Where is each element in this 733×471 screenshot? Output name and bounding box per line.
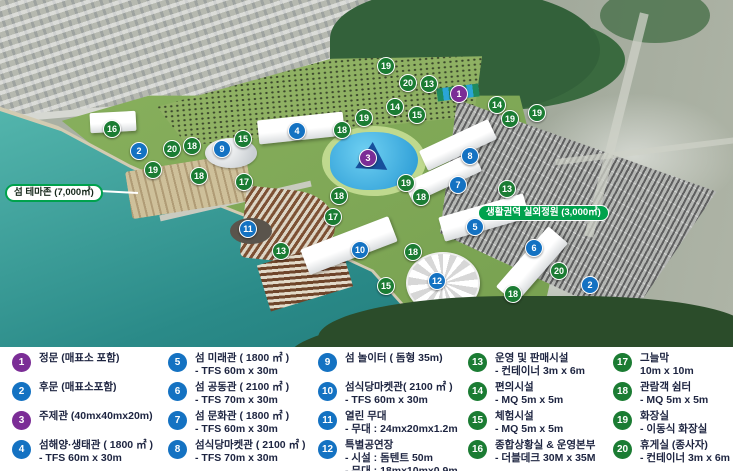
map-marker-18: 18 bbox=[333, 121, 351, 139]
map-marker-11: 11 bbox=[239, 220, 257, 238]
legend-item-detail: - TFS 70m x 30m bbox=[195, 452, 305, 465]
legend-item-title: 섬 놀이터 ( 돔형 35m) bbox=[345, 352, 443, 365]
legend-item-10: 10섬식당마켓관( 2100 ㎡ )- TFS 60m x 30m bbox=[318, 378, 468, 407]
map-marker-18: 18 bbox=[404, 243, 422, 261]
legend-item-title: 섬해양·생태관 ( 1800 ㎡ ) bbox=[39, 439, 153, 452]
legend-item-title: 체험시설 bbox=[495, 410, 563, 423]
legend-item-text: 종합상황실 & 운영본부- 더블데크 30M x 35M bbox=[495, 439, 596, 465]
map-marker-20: 20 bbox=[399, 74, 417, 92]
map-marker-13: 13 bbox=[420, 75, 438, 93]
legend-item-title: 관람객 쉼터 bbox=[640, 381, 708, 394]
legend-item-detail: - 컨테이너 3m x 6m bbox=[640, 452, 730, 465]
legend: 1정문 (매표소 포함)2후문 (매표소포함)3주제관 (40mx40mx20m… bbox=[0, 347, 733, 471]
map-marker-6: 6 bbox=[525, 239, 543, 257]
legend-number-badge: 14 bbox=[468, 382, 487, 401]
legend-item-detail: 10m x 10m bbox=[640, 365, 694, 378]
legend-item-title: 후문 (매표소포함) bbox=[39, 381, 117, 394]
legend-item-detail: - MQ 5m x 5m bbox=[640, 394, 708, 407]
legend-item-text: 섬 공동관 ( 2100 ㎡ )- TFS 70m x 30m bbox=[195, 381, 289, 407]
map-marker-17: 17 bbox=[235, 173, 253, 191]
legend-item-title: 섬 미래관 ( 1800 ㎡ ) bbox=[195, 352, 289, 365]
legend-item-detail: - 이동식 화장실 bbox=[640, 423, 707, 436]
legend-item-detail: - TFS 60m x 30m bbox=[195, 423, 289, 436]
map-marker-19: 19 bbox=[355, 109, 373, 127]
legend-item-19: 19화장실- 이동식 화장실 bbox=[613, 407, 733, 436]
legend-item-title: 종합상황실 & 운영본부 bbox=[495, 439, 596, 452]
legend-number-badge: 6 bbox=[168, 382, 187, 401]
legend-number-badge: 11 bbox=[318, 411, 337, 430]
legend-item-text: 섬 놀이터 ( 돔형 35m) bbox=[345, 352, 443, 365]
screenshot-frame: 섬 테마존 (7,000㎡) 생활권역 실외정원 (3,000㎡) 162201… bbox=[0, 0, 733, 471]
legend-item-11: 11열린 무대- 무대 : 24mx20mx1.2m bbox=[318, 407, 468, 436]
map-marker-15: 15 bbox=[234, 130, 252, 148]
legend-item-3: 3주제관 (40mx40mx20m) bbox=[12, 407, 168, 436]
legend-item-text: 그늘막10m x 10m bbox=[640, 352, 694, 378]
legend-item-title: 주제관 (40mx40mx20m) bbox=[39, 410, 153, 423]
legend-number-badge: 1 bbox=[12, 353, 31, 372]
legend-item-text: 정문 (매표소 포함) bbox=[39, 352, 119, 365]
legend-item-13: 13운영 및 판매시설- 컨테이너 3m x 6m bbox=[468, 349, 613, 378]
legend-number-badge: 18 bbox=[613, 382, 632, 401]
legend-item-1: 1정문 (매표소 포함) bbox=[12, 349, 168, 378]
legend-item-4: 4섬해양·생태관 ( 1800 ㎡ )- TFS 60m x 30m bbox=[12, 436, 168, 471]
map-marker-14: 14 bbox=[386, 98, 404, 116]
legend-item-text: 후문 (매표소포함) bbox=[39, 381, 117, 394]
legend-item-17: 17그늘막10m x 10m bbox=[613, 349, 733, 378]
map-marker-13: 13 bbox=[272, 242, 290, 260]
map-marker-18: 18 bbox=[330, 187, 348, 205]
theme-zone-label: 섬 테마존 (7,000㎡) bbox=[5, 184, 103, 202]
map-marker-17: 17 bbox=[324, 208, 342, 226]
legend-item-title: 열린 무대 bbox=[345, 410, 458, 423]
legend-item-16: 16종합상황실 & 운영본부- 더블데크 30M x 35M bbox=[468, 436, 613, 471]
legend-item-title: 휴게실 (종사자) bbox=[640, 439, 730, 452]
legend-item-detail: - TFS 60m x 30m bbox=[39, 452, 153, 465]
legend-item-title: 특별공연장 bbox=[345, 439, 458, 452]
map-marker-13: 13 bbox=[498, 180, 516, 198]
map-marker-8: 8 bbox=[461, 147, 479, 165]
legend-item-detail: - 더블데크 30M x 35M bbox=[495, 452, 596, 465]
legend-item-detail: - 무대 : 24mx20mx1.2m bbox=[345, 423, 458, 436]
legend-item-detail: - TFS 70m x 30m bbox=[195, 394, 289, 407]
legend-number-badge: 4 bbox=[12, 440, 31, 459]
legend-item-title: 화장실 bbox=[640, 410, 707, 423]
map-marker-12: 12 bbox=[428, 272, 446, 290]
map-marker-5: 5 bbox=[466, 218, 484, 236]
map-marker-4: 4 bbox=[288, 122, 306, 140]
legend-item-20: 20휴게실 (종사자)- 컨테이너 3m x 6m bbox=[613, 436, 733, 471]
map-marker-15: 15 bbox=[408, 106, 426, 124]
legend-item-detail: - 무대 : 18mx10mx0.9m bbox=[345, 465, 458, 471]
legend-number-badge: 7 bbox=[168, 411, 187, 430]
legend-item-text: 휴게실 (종사자)- 컨테이너 3m x 6m bbox=[640, 439, 730, 465]
legend-item-14: 14편의시설- MQ 5m x 5m bbox=[468, 378, 613, 407]
map-marker-19: 19 bbox=[528, 104, 546, 122]
map-marker-19: 19 bbox=[397, 174, 415, 192]
legend-item-text: 섬식당마켓관( 2100 ㎡ )- TFS 60m x 30m bbox=[345, 381, 453, 407]
legend-item-text: 섬식당마켓관 ( 2100 ㎡ )- TFS 70m x 30m bbox=[195, 439, 305, 465]
legend-item-detail: - TFS 60m x 30m bbox=[345, 394, 453, 407]
map-marker-15: 15 bbox=[377, 277, 395, 295]
legend-number-badge: 13 bbox=[468, 353, 487, 372]
map-marker-10: 10 bbox=[351, 241, 369, 259]
legend-item-text: 열린 무대- 무대 : 24mx20mx1.2m bbox=[345, 410, 458, 436]
map-marker-18: 18 bbox=[504, 285, 522, 303]
legend-item-8: 8섬식당마켓관 ( 2100 ㎡ )- TFS 70m x 30m bbox=[168, 436, 318, 471]
map-marker-20: 20 bbox=[550, 262, 568, 280]
legend-number-badge: 2 bbox=[12, 382, 31, 401]
map-marker-18: 18 bbox=[183, 137, 201, 155]
legend-item-title: 섬식당마켓관 ( 2100 ㎡ ) bbox=[195, 439, 305, 452]
map-marker-1: 1 bbox=[450, 85, 468, 103]
legend-item-18: 18관람객 쉼터- MQ 5m x 5m bbox=[613, 378, 733, 407]
legend-item-2: 2후문 (매표소포함) bbox=[12, 378, 168, 407]
map-marker-18: 18 bbox=[190, 167, 208, 185]
legend-item-5: 5섬 미래관 ( 1800 ㎡ )- TFS 60m x 30m bbox=[168, 349, 318, 378]
aerial-map: 섬 테마존 (7,000㎡) 생활권역 실외정원 (3,000㎡) 162201… bbox=[0, 0, 733, 347]
legend-number-badge: 8 bbox=[168, 440, 187, 459]
legend-item-text: 주제관 (40mx40mx20m) bbox=[39, 410, 153, 423]
legend-item-text: 섬해양·생태관 ( 1800 ㎡ )- TFS 60m x 30m bbox=[39, 439, 153, 465]
legend-item-detail: - MQ 5m x 5m bbox=[495, 423, 563, 436]
legend-item-text: 화장실- 이동식 화장실 bbox=[640, 410, 707, 436]
legend-number-badge: 5 bbox=[168, 353, 187, 372]
map-marker-3: 3 bbox=[359, 149, 377, 167]
legend-item-9: 9섬 놀이터 ( 돔형 35m) bbox=[318, 349, 468, 378]
map-marker-19: 19 bbox=[501, 110, 519, 128]
legend-item-12: 12특별공연장- 시설 : 돔텐트 50m- 무대 : 18mx10mx0.9m bbox=[318, 436, 468, 471]
legend-number-badge: 12 bbox=[318, 440, 337, 459]
legend-item-7: 7섬 문화관 ( 1800 ㎡ )- TFS 60m x 30m bbox=[168, 407, 318, 436]
legend-number-badge: 16 bbox=[468, 440, 487, 459]
map-marker-2: 2 bbox=[581, 276, 599, 294]
legend-item-title: 편의시설 bbox=[495, 381, 563, 394]
legend-item-text: 관람객 쉼터- MQ 5m x 5m bbox=[640, 381, 708, 407]
legend-item-detail: - 컨테이너 3m x 6m bbox=[495, 365, 585, 378]
legend-item-text: 편의시설- MQ 5m x 5m bbox=[495, 381, 563, 407]
map-marker-7: 7 bbox=[449, 176, 467, 194]
legend-item-text: 운영 및 판매시설- 컨테이너 3m x 6m bbox=[495, 352, 585, 378]
legend-item-text: 특별공연장- 시설 : 돔텐트 50m- 무대 : 18mx10mx0.9m bbox=[345, 439, 458, 471]
legend-number-badge: 19 bbox=[613, 411, 632, 430]
legend-item-6: 6섬 공동관 ( 2100 ㎡ )- TFS 70m x 30m bbox=[168, 378, 318, 407]
legend-item-text: 섬 미래관 ( 1800 ㎡ )- TFS 60m x 30m bbox=[195, 352, 289, 378]
legend-number-badge: 10 bbox=[318, 382, 337, 401]
legend-item-title: 정문 (매표소 포함) bbox=[39, 352, 119, 365]
map-marker-20: 20 bbox=[163, 140, 181, 158]
legend-item-title: 섬 문화관 ( 1800 ㎡ ) bbox=[195, 410, 289, 423]
legend-number-badge: 15 bbox=[468, 411, 487, 430]
legend-item-text: 섬 문화관 ( 1800 ㎡ )- TFS 60m x 30m bbox=[195, 410, 289, 436]
legend-item-detail: - MQ 5m x 5m bbox=[495, 394, 563, 407]
map-marker-2: 2 bbox=[130, 142, 148, 160]
map-marker-18: 18 bbox=[412, 188, 430, 206]
legend-number-badge: 3 bbox=[12, 411, 31, 430]
legend-item-detail: - 시설 : 돔텐트 50m bbox=[345, 452, 458, 465]
map-marker-19: 19 bbox=[377, 57, 395, 75]
map-marker-19: 19 bbox=[144, 161, 162, 179]
legend-item-title: 그늘막 bbox=[640, 352, 694, 365]
map-marker-16: 16 bbox=[103, 120, 121, 138]
legend-number-badge: 17 bbox=[613, 353, 632, 372]
legend-item-title: 섬 공동관 ( 2100 ㎡ ) bbox=[195, 381, 289, 394]
legend-item-title: 섬식당마켓관( 2100 ㎡ ) bbox=[345, 381, 453, 394]
legend-number-badge: 9 bbox=[318, 353, 337, 372]
legend-item-text: 체험시설- MQ 5m x 5m bbox=[495, 410, 563, 436]
outdoor-garden-label: 생활권역 실외정원 (3,000㎡) bbox=[478, 205, 609, 221]
legend-item-15: 15체험시설- MQ 5m x 5m bbox=[468, 407, 613, 436]
legend-item-title: 운영 및 판매시설 bbox=[495, 352, 585, 365]
legend-number-badge: 20 bbox=[613, 440, 632, 459]
map-marker-9: 9 bbox=[213, 140, 231, 158]
legend-item-detail: - TFS 60m x 30m bbox=[195, 365, 289, 378]
